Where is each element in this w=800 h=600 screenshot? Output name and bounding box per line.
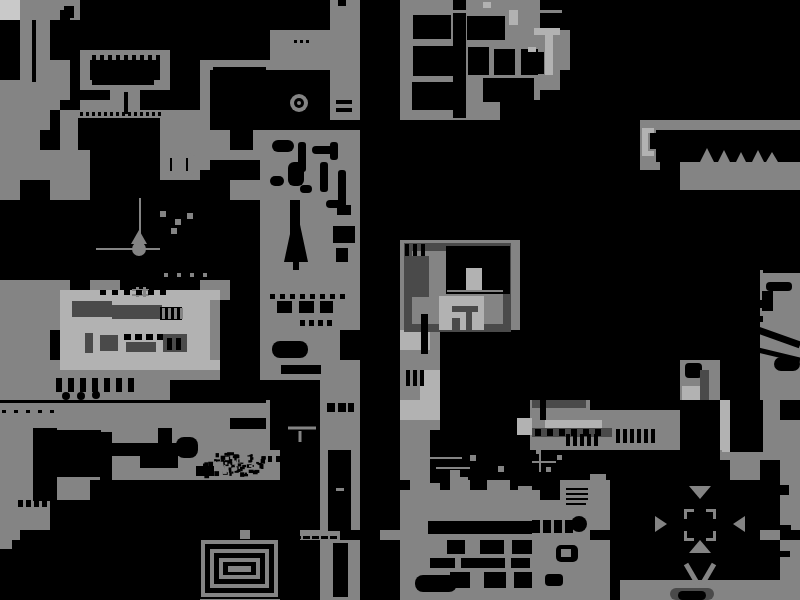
game-world-map-screen [0, 0, 800, 600]
world-map-canvas [0, 0, 800, 600]
